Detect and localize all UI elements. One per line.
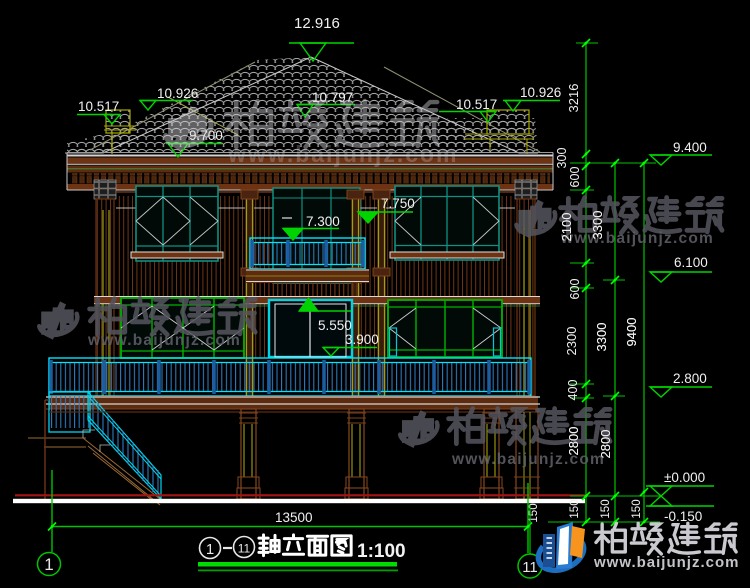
svg-text:1: 1 xyxy=(44,555,53,574)
svg-text:3.900: 3.900 xyxy=(345,332,379,347)
svg-text:6.100: 6.100 xyxy=(674,255,708,270)
svg-text:2300: 2300 xyxy=(564,327,579,356)
svg-text:5.550: 5.550 xyxy=(318,318,352,333)
svg-text:3216: 3216 xyxy=(566,84,581,113)
svg-text:±0.000: ±0.000 xyxy=(664,470,705,485)
svg-text:3300: 3300 xyxy=(590,211,605,240)
svg-text:2.800: 2.800 xyxy=(673,371,707,386)
svg-text:600: 600 xyxy=(568,167,582,188)
svg-text:9.400: 9.400 xyxy=(673,140,707,155)
svg-text:11: 11 xyxy=(522,559,538,576)
svg-text:2800: 2800 xyxy=(598,430,613,459)
svg-text:400: 400 xyxy=(566,380,580,401)
svg-text:13500: 13500 xyxy=(275,510,313,525)
svg-text:10.517: 10.517 xyxy=(456,97,497,112)
svg-text:www.baijunjz.com: www.baijunjz.com xyxy=(227,141,459,167)
svg-text:9400: 9400 xyxy=(624,318,639,347)
svg-text:2800: 2800 xyxy=(566,427,581,456)
svg-text:10.517: 10.517 xyxy=(78,99,119,114)
svg-text:www.baijunjz.com: www.baijunjz.com xyxy=(87,332,241,349)
svg-text:300: 300 xyxy=(555,148,569,169)
svg-text:150: 150 xyxy=(569,499,581,518)
svg-text:1: 1 xyxy=(206,541,214,558)
svg-text:11: 11 xyxy=(238,542,251,556)
svg-text:3300: 3300 xyxy=(594,323,609,352)
svg-text:10.926: 10.926 xyxy=(157,86,198,101)
svg-text:7.750: 7.750 xyxy=(381,196,415,211)
svg-text:600: 600 xyxy=(568,279,582,300)
svg-text:-0.150: -0.150 xyxy=(664,509,702,524)
svg-text:12.916: 12.916 xyxy=(294,15,340,32)
svg-text:7.300: 7.300 xyxy=(306,214,340,229)
svg-text:2100: 2100 xyxy=(559,213,574,242)
svg-text:10.926: 10.926 xyxy=(520,85,561,100)
svg-text:150: 150 xyxy=(600,499,612,518)
svg-text:www.baijunjz.com: www.baijunjz.com xyxy=(560,230,714,247)
svg-text:1:100: 1:100 xyxy=(357,541,406,562)
svg-text:www.baijunjz.com: www.baijunjz.com xyxy=(451,451,605,468)
svg-text:150: 150 xyxy=(631,499,643,518)
svg-text:www.baijunjz.com: www.baijunjz.com xyxy=(593,554,739,571)
